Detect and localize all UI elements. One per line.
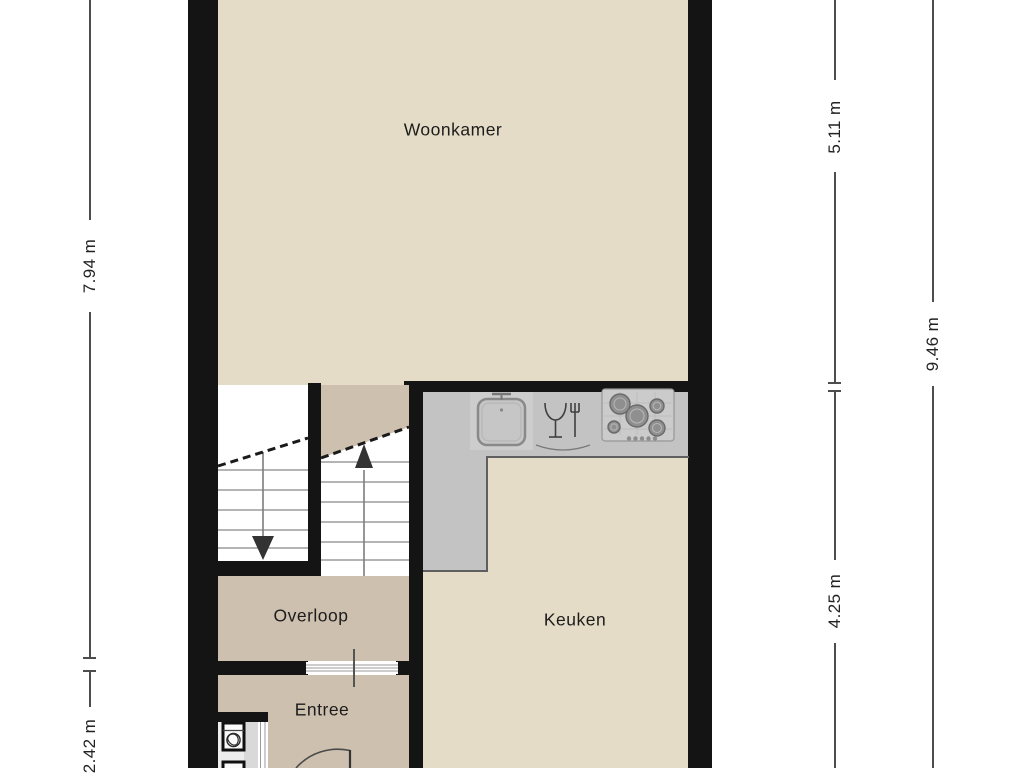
kitchen-counter-edge [423, 457, 689, 572]
dishwasher-icon [536, 403, 590, 450]
dimension-label: 4.25 m [825, 574, 845, 628]
sink-icon [470, 392, 533, 450]
room-label-keuken: Keuken [544, 610, 606, 631]
dimension-label: 9.46 m [923, 317, 943, 371]
room-label-overloop: Overloop [273, 606, 348, 627]
stairs-up-arrow-icon [355, 444, 373, 468]
toilet-icon [223, 723, 244, 750]
room-label-entree: Entree [295, 700, 350, 721]
washbasin-icon [223, 762, 244, 768]
floor-plan-canvas: 7.94 m 2.42 m 5.11 m 4.25 m 9.46 m Woonk… [0, 0, 1024, 768]
staircase-up [321, 385, 409, 576]
overloop-entree-opening [306, 649, 398, 687]
dimension-label: 5.11 m [825, 100, 845, 153]
toilet-door-opening [258, 722, 268, 768]
door-swing-icon [296, 749, 350, 768]
floorplan-details [0, 0, 1024, 768]
staircase-down [218, 438, 308, 560]
dimension-label: 2.42 m [80, 719, 100, 773]
dimension-label: 7.94 m [80, 239, 100, 293]
gas-hob-icon [602, 389, 674, 441]
room-label-woonkamer: Woonkamer [404, 120, 503, 141]
